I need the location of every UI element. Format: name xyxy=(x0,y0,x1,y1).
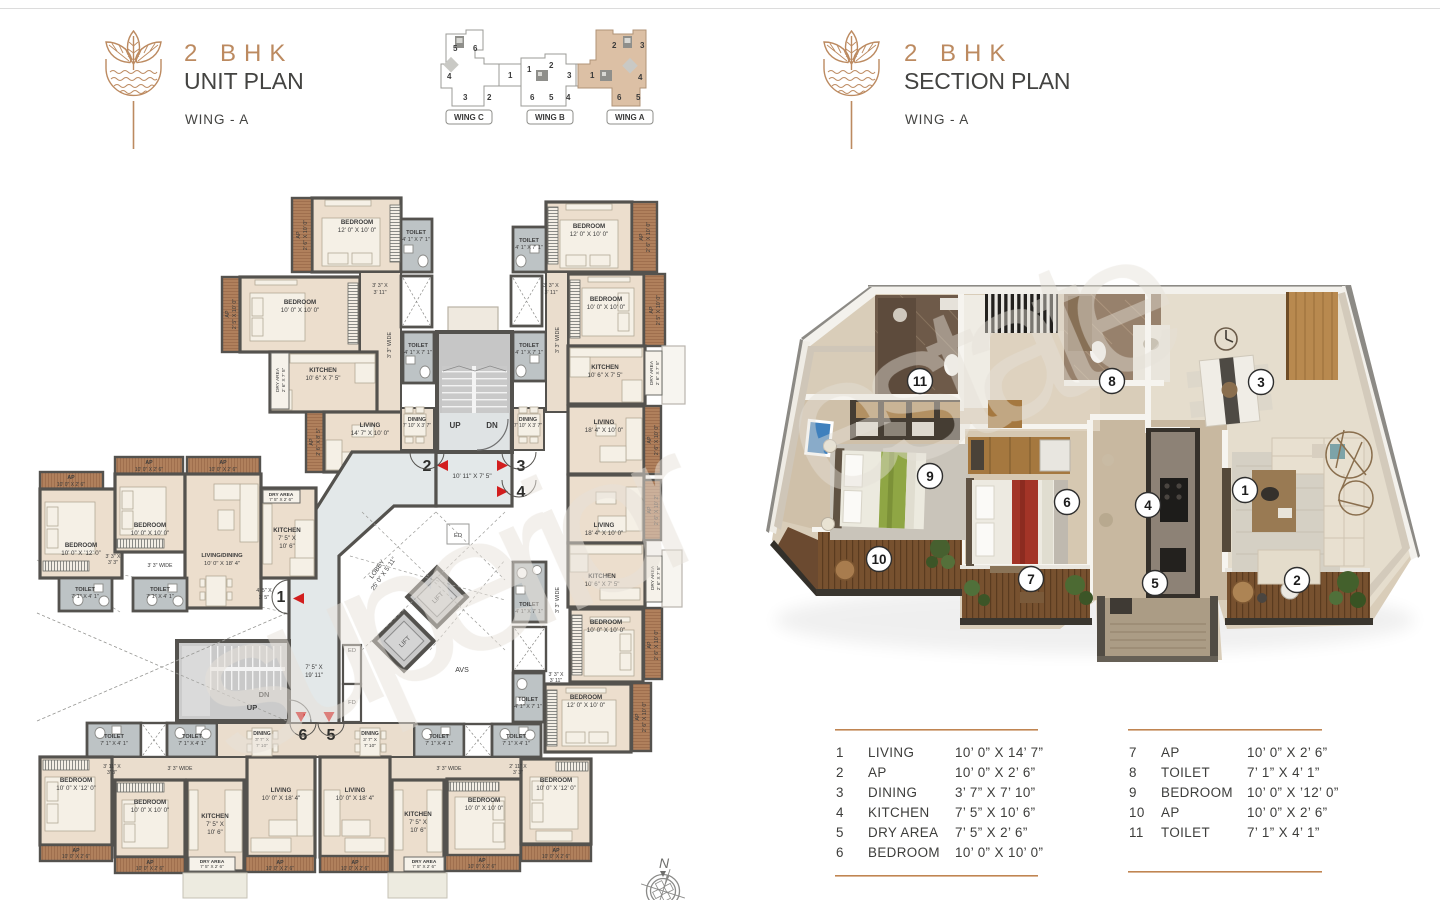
svg-text:LIVING: LIVING xyxy=(360,422,381,429)
svg-text:WING - A: WING - A xyxy=(185,112,249,127)
svg-text:2: 2 xyxy=(836,765,844,780)
svg-text:4: 4 xyxy=(447,72,452,81)
svg-text:3' 3" WIDE: 3' 3" WIDE xyxy=(167,766,193,772)
svg-text:4' 1" X 7' 1": 4' 1" X 7' 1" xyxy=(515,245,543,251)
svg-text:KITCHEN: KITCHEN xyxy=(273,527,301,534)
svg-text:10' 6" X 7' 5": 10' 6" X 7' 5" xyxy=(588,372,623,379)
svg-text:TOILET: TOILET xyxy=(506,734,526,740)
svg-text:1: 1 xyxy=(836,745,844,760)
svg-text:7' 5" X 2' 6": 7' 5" X 2' 6" xyxy=(269,497,293,502)
svg-text:TOILET: TOILET xyxy=(519,238,539,244)
svg-text:WING A: WING A xyxy=(615,113,645,122)
svg-text:1: 1 xyxy=(527,65,532,74)
svg-text:DRY AREA: DRY AREA xyxy=(275,367,281,392)
svg-text:7’ 1” X 4’ 1”: 7’ 1” X 4’ 1” xyxy=(1247,825,1320,840)
svg-text:AP: AP xyxy=(635,713,641,721)
svg-text:3' 3": 3' 3" xyxy=(107,770,117,776)
svg-text:6: 6 xyxy=(473,44,478,53)
svg-text:3' 3" WIDE: 3' 3" WIDE xyxy=(555,327,561,353)
svg-text:11: 11 xyxy=(913,374,928,389)
svg-text:3' 11": 3' 11" xyxy=(373,290,386,296)
svg-text:3' 3" WIDE: 3' 3" WIDE xyxy=(436,766,462,772)
svg-text:6: 6 xyxy=(836,845,844,860)
svg-text:3' 11": 3' 11" xyxy=(550,678,563,684)
svg-text:10' 0" X 18' 4": 10' 0" X 18' 4" xyxy=(262,795,300,802)
svg-text:UNIT PLAN: UNIT PLAN xyxy=(184,68,304,94)
svg-text:LIVING/DINING: LIVING/DINING xyxy=(201,553,243,559)
svg-text:AP: AP xyxy=(647,436,653,444)
svg-text:7' 10" X 3' 7": 7' 10" X 3' 7" xyxy=(403,423,431,429)
svg-text:10' 0" X 2' 6": 10' 0" X 2' 6" xyxy=(62,854,90,860)
svg-text:10' 0" X 10' 0": 10' 0" X 10' 0" xyxy=(465,805,503,812)
svg-text:8: 8 xyxy=(1108,374,1116,389)
svg-text:10' 6": 10' 6" xyxy=(410,827,425,834)
svg-text:BEDROOM: BEDROOM xyxy=(1161,785,1233,800)
svg-text:3' 3": 3' 3" xyxy=(513,770,523,776)
svg-text:9: 9 xyxy=(926,469,934,484)
svg-text:3: 3 xyxy=(836,785,844,800)
svg-text:7' 5" X: 7' 5" X xyxy=(278,535,296,542)
svg-text:TOILET: TOILET xyxy=(406,230,426,236)
svg-text:10' 0" X 2' 6": 10' 0" X 2' 6" xyxy=(135,467,163,473)
svg-text:10’ 0” X 14’ 7”: 10’ 0” X 14’ 7” xyxy=(955,745,1043,760)
svg-text:5: 5 xyxy=(453,44,458,53)
svg-text:3: 3 xyxy=(463,93,468,102)
svg-text:4' 1" X 7' 1": 4' 1" X 7' 1" xyxy=(402,237,430,243)
svg-text:BEDROOM: BEDROOM xyxy=(65,542,97,549)
svg-text:3' 3" WIDE: 3' 3" WIDE xyxy=(147,563,173,569)
svg-text:10’ 0” X 10’ 0”: 10’ 0” X 10’ 0” xyxy=(955,845,1043,860)
svg-text:3: 3 xyxy=(640,41,645,50)
svg-text:4: 4 xyxy=(1144,498,1152,513)
svg-text:2 BHK: 2 BHK xyxy=(904,40,1013,67)
svg-text:10' 0" X 2' 6": 10' 0" X 2' 6" xyxy=(136,866,164,872)
svg-text:2' 6" X 10' 0": 2' 6" X 10' 0" xyxy=(654,425,660,456)
svg-text:TOILET: TOILET xyxy=(104,734,124,740)
svg-text:10' 0" X 2' 6": 10' 0" X 2' 6" xyxy=(266,866,294,872)
svg-text:4: 4 xyxy=(566,93,571,102)
svg-text:10' 0" X 10' 0": 10' 0" X 10' 0" xyxy=(281,307,319,314)
svg-text:KITCHEN: KITCHEN xyxy=(404,811,432,818)
svg-text:BEDROOM: BEDROOM xyxy=(134,522,166,529)
svg-text:10’ 0” X 2’ 6”: 10’ 0” X 2’ 6” xyxy=(1247,745,1328,760)
svg-text:7' 1" X 4' 1": 7' 1" X 4' 1" xyxy=(71,594,99,600)
svg-text:7' 1" X 4' 1": 7' 1" X 4' 1" xyxy=(425,741,453,747)
svg-text:3’ 7” X 7’ 10”: 3’ 7” X 7’ 10” xyxy=(955,785,1036,800)
svg-text:7' 5" X: 7' 5" X xyxy=(409,819,427,826)
svg-text:10: 10 xyxy=(871,552,886,567)
svg-text:1: 1 xyxy=(508,71,513,80)
svg-text:7’ 5” X 2’ 6”: 7’ 5” X 2’ 6” xyxy=(955,825,1028,840)
svg-text:10' 0" X 18' 4": 10' 0" X 18' 4" xyxy=(204,561,240,567)
svg-text:11: 11 xyxy=(1129,825,1144,840)
svg-text:10' 6" X 7' 5": 10' 6" X 7' 5" xyxy=(306,375,341,382)
svg-text:AP: AP xyxy=(309,438,315,446)
svg-text:3: 3 xyxy=(567,71,572,80)
svg-text:DRY AREA: DRY AREA xyxy=(868,825,938,840)
svg-text:DINING: DINING xyxy=(868,785,917,800)
svg-text:5: 5 xyxy=(836,825,844,840)
svg-text:7' 10" X 3' 7": 7' 10" X 3' 7" xyxy=(514,423,542,429)
svg-text:AP: AP xyxy=(145,460,153,466)
svg-text:DRY AREA: DRY AREA xyxy=(649,360,655,385)
svg-text:7' 1" X 4' 1": 7' 1" X 4' 1" xyxy=(502,741,530,747)
svg-text:10' 6": 10' 6" xyxy=(207,829,222,836)
svg-text:2: 2 xyxy=(612,41,617,50)
svg-text:TOILET: TOILET xyxy=(518,697,538,703)
svg-text:7' 5" X 2' 6": 7' 5" X 2' 6" xyxy=(412,864,436,869)
svg-text:AP: AP xyxy=(1161,805,1180,820)
svg-text:2 BHK: 2 BHK xyxy=(184,40,293,67)
svg-text:7: 7 xyxy=(1027,572,1035,587)
svg-text:2: 2 xyxy=(423,458,432,475)
svg-text:3' 3" X: 3' 3" X xyxy=(372,283,388,289)
svg-text:BEDROOM: BEDROOM xyxy=(134,799,166,806)
svg-text:2' 5" X 10' 0": 2' 5" X 10' 0" xyxy=(232,299,238,330)
svg-text:4: 4 xyxy=(836,805,844,820)
svg-text:10’ 0” X 2’ 6”: 10’ 0” X 2’ 6” xyxy=(1247,805,1328,820)
svg-text:7' 1" X 4' 1": 7' 1" X 4' 1" xyxy=(100,741,128,747)
svg-text:2: 2 xyxy=(1293,573,1301,588)
svg-text:10: 10 xyxy=(1129,805,1145,820)
svg-text:10' 0" X 2' 6": 10' 0" X 2' 6" xyxy=(57,482,85,488)
svg-text:7' 5" X: 7' 5" X xyxy=(206,821,224,828)
svg-text:AP: AP xyxy=(1161,745,1180,760)
svg-text:7’ 1” X 4’ 1”: 7’ 1” X 4’ 1” xyxy=(1247,765,1320,780)
svg-text:10' 0" X 10' 0": 10' 0" X 10' 0" xyxy=(131,807,169,814)
svg-text:1: 1 xyxy=(1241,483,1249,498)
svg-text:AP: AP xyxy=(639,233,645,241)
svg-text:12' 0" X 10' 0": 12' 0" X 10' 0" xyxy=(570,231,608,238)
svg-text:7: 7 xyxy=(1129,745,1137,760)
svg-text:TOILET: TOILET xyxy=(519,343,539,349)
svg-text:AP: AP xyxy=(296,231,302,239)
svg-text:4: 4 xyxy=(638,73,643,82)
svg-text:2' 6" X 7' 5": 2' 6" X 7' 5" xyxy=(655,360,661,385)
svg-text:7’ 5” X 10’ 6”: 7’ 5” X 10’ 6” xyxy=(955,805,1036,820)
svg-text:LIVING: LIVING xyxy=(345,787,366,794)
svg-text:2' 6" X 10' 0": 2' 6" X 10' 0" xyxy=(303,220,309,251)
svg-text:10’ 0” X ’12’ 0”: 10’ 0” X ’12’ 0” xyxy=(1247,785,1339,800)
svg-text:SECTION PLAN: SECTION PLAN xyxy=(904,68,1070,94)
svg-text:BEDROOM: BEDROOM xyxy=(573,223,605,230)
svg-text:2' 6" X 7' 5": 2' 6" X 7' 5" xyxy=(281,367,287,392)
svg-text:10' 0" X 10' 0": 10' 0" X 10' 0" xyxy=(131,530,169,537)
svg-text:10' 0" X 2' 6": 10' 0" X 2' 6" xyxy=(542,854,570,860)
svg-text:10’ 0” X ’12’ 0”: 10’ 0” X ’12’ 0” xyxy=(536,785,575,792)
svg-text:6: 6 xyxy=(1063,495,1071,510)
svg-text:TOILET: TOILET xyxy=(182,734,202,740)
svg-text:AP: AP xyxy=(225,310,231,318)
svg-text:9: 9 xyxy=(1129,785,1137,800)
svg-text:AP: AP xyxy=(868,765,887,780)
svg-text:KITCHEN: KITCHEN xyxy=(309,367,337,374)
svg-text:2' 6" X 10' 0": 2' 6" X 10' 0" xyxy=(642,702,648,733)
svg-text:2' 5" X 10' 0": 2' 5" X 10' 0" xyxy=(656,295,662,326)
svg-text:4' 1" X 7' 1": 4' 1" X 7' 1" xyxy=(404,350,432,356)
svg-text:WING C: WING C xyxy=(454,113,484,122)
svg-text:3' 11": 3' 11" xyxy=(544,290,557,296)
svg-text:TOILET: TOILET xyxy=(1161,825,1210,840)
svg-text:3' 3": 3' 3" xyxy=(108,560,118,566)
svg-text:14' 7" X 10' 0": 14' 7" X 10' 0" xyxy=(351,430,389,437)
svg-text:10’ 0” X 2’ 6”: 10’ 0” X 2’ 6” xyxy=(955,765,1036,780)
svg-text:BEDROOM: BEDROOM xyxy=(590,296,622,303)
svg-text:DN: DN xyxy=(486,421,498,430)
svg-text:2: 2 xyxy=(487,93,492,102)
svg-text:BEDROOM: BEDROOM xyxy=(341,219,373,226)
svg-text:TOILET: TOILET xyxy=(429,734,449,740)
svg-text:4' 1" X 7' 1": 4' 1" X 7' 1" xyxy=(515,350,543,356)
svg-text:2: 2 xyxy=(549,61,554,70)
svg-text:TOILET: TOILET xyxy=(150,587,170,593)
svg-text:4' 1" X 7' 1": 4' 1" X 7' 1" xyxy=(514,704,542,710)
svg-text:8: 8 xyxy=(1129,765,1137,780)
svg-text:LIVING: LIVING xyxy=(868,745,914,760)
svg-text:AP: AP xyxy=(219,460,227,466)
svg-text:TOILET: TOILET xyxy=(1161,765,1210,780)
svg-text:10' 0" X 2' 6": 10' 0" X 2' 6" xyxy=(341,866,369,872)
svg-text:10' 0" X 18' 4": 10' 0" X 18' 4" xyxy=(336,795,374,802)
svg-text:AP: AP xyxy=(647,641,653,649)
svg-text:WING - A: WING - A xyxy=(905,112,969,127)
svg-text:6: 6 xyxy=(617,93,622,102)
svg-text:TOILET: TOILET xyxy=(408,343,428,349)
svg-text:3: 3 xyxy=(1257,375,1265,390)
svg-text:5: 5 xyxy=(1151,576,1159,591)
svg-text:3' 3" WIDE: 3' 3" WIDE xyxy=(387,332,393,358)
svg-text:7' 1" X 4' 1": 7' 1" X 4' 1" xyxy=(178,741,206,747)
svg-text:3' 3" X: 3' 3" X xyxy=(543,283,559,289)
svg-text:N: N xyxy=(659,855,670,871)
svg-text:2' 6" X 10' 0": 2' 6" X 10' 0" xyxy=(654,630,660,661)
svg-text:7' 5" X 2' 6": 7' 5" X 2' 6" xyxy=(200,864,224,869)
svg-text:TOILET: TOILET xyxy=(75,587,95,593)
svg-text:10' 0" X 2' 6": 10' 0" X 2' 6" xyxy=(468,864,496,870)
svg-text:BEDROOM: BEDROOM xyxy=(60,777,92,784)
svg-text:BEDROOM: BEDROOM xyxy=(284,299,316,306)
svg-text:KITCHEN: KITCHEN xyxy=(201,813,229,820)
svg-text:AP: AP xyxy=(649,306,655,314)
svg-text:12' 0" X 10' 0": 12' 0" X 10' 0" xyxy=(338,227,376,234)
svg-text:AP: AP xyxy=(67,475,75,481)
svg-text:BEDROOM: BEDROOM xyxy=(540,777,572,784)
svg-text:BEDROOM: BEDROOM xyxy=(468,797,500,804)
svg-text:KITCHEN: KITCHEN xyxy=(591,364,619,371)
svg-text:KITCHEN: KITCHEN xyxy=(868,805,930,820)
svg-text:BEDROOM: BEDROOM xyxy=(868,845,940,860)
svg-text:6: 6 xyxy=(530,93,535,102)
svg-text:10' 0" X 2' 6": 10' 0" X 2' 6" xyxy=(209,467,237,473)
svg-text:10' 0" X 10' 0": 10' 0" X 10' 0" xyxy=(587,304,625,311)
svg-text:UP: UP xyxy=(449,421,461,430)
svg-text:10’ 0” X ’12’ 0”: 10’ 0” X ’12’ 0” xyxy=(61,550,100,557)
svg-text:1: 1 xyxy=(590,71,595,80)
svg-text:2' 6" X 8' 5": 2' 6" X 8' 5" xyxy=(316,428,322,456)
svg-text:WING B: WING B xyxy=(535,113,565,122)
svg-text:BEDROOM: BEDROOM xyxy=(570,694,602,701)
svg-text:5: 5 xyxy=(636,93,641,102)
svg-text:5: 5 xyxy=(549,93,554,102)
svg-text:10’ 0” X ’12’ 0”: 10’ 0” X ’12’ 0” xyxy=(56,785,95,792)
svg-text:2' 6" X 10' 0": 2' 6" X 10' 0" xyxy=(646,222,652,253)
svg-text:12' 0" X 10' 0": 12' 0" X 10' 0" xyxy=(567,702,605,709)
